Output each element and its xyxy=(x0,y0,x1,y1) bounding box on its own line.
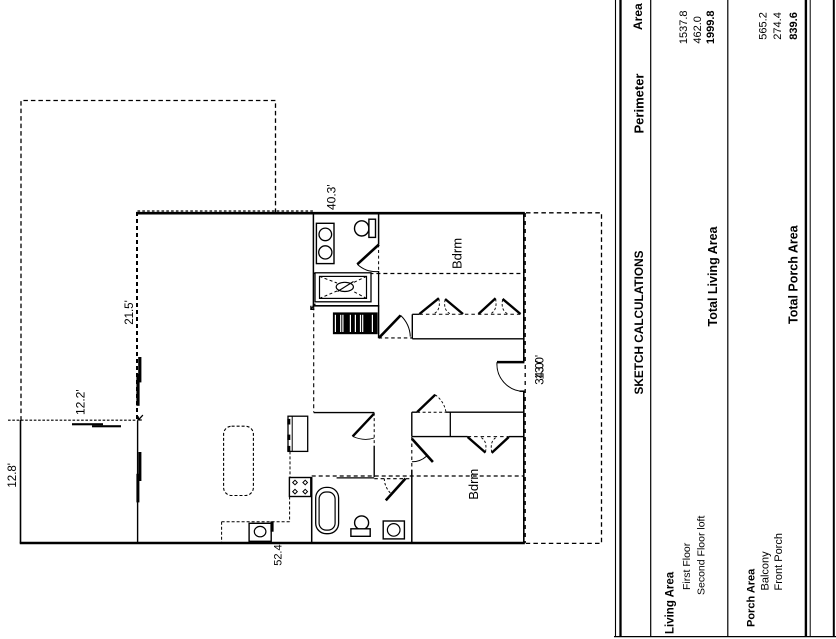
svg-text:Perimeter: Perimeter xyxy=(632,74,647,134)
svg-text:Total Living Area: Total Living Area xyxy=(706,225,720,326)
svg-text:1999.8: 1999.8 xyxy=(705,10,717,44)
svg-text:Bdrm: Bdrm xyxy=(450,238,465,269)
svg-text:First Floor: First Floor xyxy=(681,542,693,590)
svg-text:40.3': 40.3' xyxy=(325,184,339,210)
svg-text:13.0': 13.0' xyxy=(534,355,546,380)
svg-text:565.2: 565.2 xyxy=(758,12,770,40)
svg-text:Balcony: Balcony xyxy=(760,551,772,591)
svg-text:1537.8: 1537.8 xyxy=(678,10,690,44)
svg-text:Area: Area xyxy=(631,3,645,30)
svg-text:21.5': 21.5' xyxy=(124,300,136,325)
svg-text:839.6: 839.6 xyxy=(788,12,800,40)
svg-text:Living Area: Living Area xyxy=(665,571,677,634)
svg-text:Total Porch Area: Total Porch Area xyxy=(787,224,801,324)
svg-text:12.2': 12.2' xyxy=(74,389,88,415)
svg-text:Second Floor loft: Second Floor loft xyxy=(696,516,708,595)
svg-text:Bdrm: Bdrm xyxy=(466,469,481,500)
svg-text:52.4': 52.4' xyxy=(272,542,284,566)
svg-text:274.4: 274.4 xyxy=(772,12,784,40)
svg-text:SKETCH CALCULATIONS: SKETCH CALCULATIONS xyxy=(632,250,646,394)
svg-text:Porch Area: Porch Area xyxy=(746,568,758,627)
svg-text:12.8': 12.8' xyxy=(7,463,19,488)
svg-text:462.0: 462.0 xyxy=(692,16,704,44)
svg-text:Front Porch: Front Porch xyxy=(773,533,785,590)
